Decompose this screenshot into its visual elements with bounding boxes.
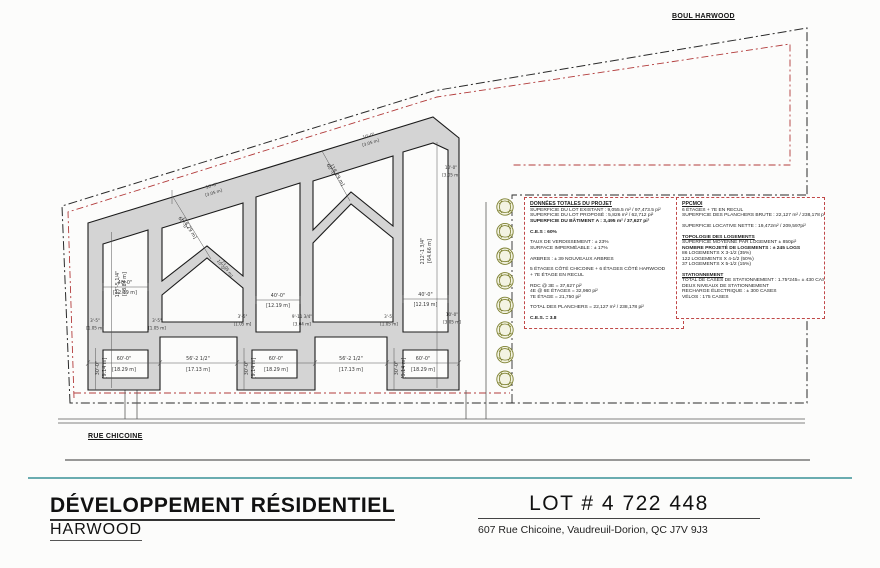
- tree-row: [497, 199, 513, 388]
- dim-text: [9.14 m]: [251, 358, 257, 379]
- street-label-rue-chicoine: RUE CHICOINE: [88, 433, 143, 440]
- dim-text: 3'-5": [238, 314, 248, 319]
- dim-text: 3'-5": [384, 314, 394, 319]
- ppcmoi-title: PPCMOI: [682, 201, 819, 208]
- dim-text: [1.05 m]: [234, 322, 252, 327]
- street-label-boul-harwood: BOUL HARWOOD: [672, 13, 735, 20]
- info-line: SUPERFICIE DES PLANCHERS BRUTE : 22,127 …: [682, 213, 819, 218]
- dim-text: [17.13 m]: [339, 367, 363, 373]
- dim-text: 60'-0": [117, 356, 131, 362]
- info-line: SUPERFICIE LOCATIVE NETTE : 19,472m² / 2…: [682, 224, 819, 229]
- dim-text: 10'-0": [445, 165, 457, 170]
- dim-text: 30'-0": [394, 361, 400, 375]
- project-address: 607 Rue Chicoine, Vaudreuil-Dorion, QC J…: [478, 524, 708, 536]
- dim-text: [18.29 m]: [112, 367, 136, 373]
- dim-text: 127'-5 1/4": [115, 271, 121, 298]
- dim-text: [12.19 m]: [266, 303, 290, 309]
- ppcmoi-panel: PPCMOI 6 ÉTAGES + 7E EN RECULSUPERFICIE …: [676, 197, 825, 319]
- dim-text: 56'-2 1/2": [186, 356, 210, 362]
- dim-text: 3'-5": [152, 318, 162, 323]
- dim-text: [1.05 m]: [380, 322, 398, 327]
- dim-text: 212'-1 3/4": [420, 238, 426, 265]
- dim-text: 3'-5": [90, 318, 100, 323]
- info-line: C.E.S. = 3.8: [530, 316, 678, 321]
- site-plan-sheet: 60'-0" [18.29 m] 56'-2 1/2" [17.13 m] 60…: [0, 0, 880, 568]
- dim-text: [12.19 m]: [414, 302, 438, 308]
- dim-text: [3.05 m]: [442, 173, 460, 178]
- dim-text: [64.66 m]: [427, 239, 433, 263]
- project-title: DÉVELOPPEMENT RÉSIDENTIEL: [50, 494, 395, 521]
- info-line: VÉLOS : 175 CASES: [682, 295, 819, 300]
- dim-text: [1.05 m]: [86, 326, 104, 331]
- lot-number-wrap: LOT # 4 722 448: [478, 492, 760, 519]
- dim-text: 10'-0": [446, 312, 458, 317]
- project-subtitle: HARWOOD: [50, 521, 142, 541]
- dim-text: [9.14 m]: [401, 358, 407, 379]
- dim-text: 40'-0": [271, 293, 285, 299]
- dim-text: [38.84 m]: [122, 272, 128, 296]
- dim-text: 40'-0": [418, 292, 432, 298]
- dim-text: 9'-11 3/4": [292, 314, 312, 319]
- dim-text: [3.05 m]: [443, 320, 461, 325]
- dim-text: 60'-0": [416, 356, 430, 362]
- dim-text: [17.13 m]: [186, 367, 210, 373]
- dim-text: [18.29 m]: [264, 367, 288, 373]
- dim-text: 56'-2 1/2": [339, 356, 363, 362]
- dim-text: 30'-0": [244, 361, 250, 375]
- dim-text: [18.29 m]: [411, 367, 435, 373]
- ppcmoi-lines: 6 ÉTAGES + 7E EN RECULSUPERFICIE DES PLA…: [682, 208, 819, 300]
- dim-text: [9.14 m]: [102, 358, 108, 379]
- info-line: TOTAL DE CASES DE STATIONNEMENT : 1.75*2…: [682, 278, 819, 283]
- project-data-lines: SUPERFICIE DU LOT EXISTANT : 9,055.5 m² …: [530, 208, 678, 322]
- dim-text: [1.05 m]: [148, 326, 166, 331]
- project-data-title: DONNÉES TOTALES DU PROJET: [530, 201, 678, 208]
- lot-number: LOT # 4 722 448: [529, 492, 709, 515]
- dim-text: [3.04 m]: [293, 322, 311, 327]
- building-footprint: [88, 117, 459, 390]
- dim-text: 30'-0": [95, 361, 101, 375]
- dim-text: 60'-0": [269, 356, 283, 362]
- project-data-panel: DONNÉES TOTALES DU PROJET SUPERFICIE DU …: [524, 197, 684, 329]
